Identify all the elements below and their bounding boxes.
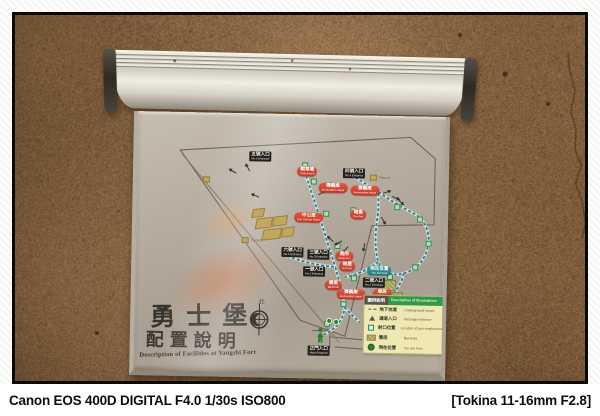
legend-header: 圖例說明 Description of Illustrations	[364, 296, 446, 307]
legend-rows: 地下坑道Underground tunnel通道入口Passage entran…	[364, 305, 447, 355]
legend-item-chinese: 通道入口	[379, 316, 401, 322]
label-english: No.6 Entrance	[283, 253, 301, 256]
label-english: Restroom	[338, 257, 350, 260]
legend-item-chinese: 營房	[379, 335, 401, 341]
gun-emplacement-icon	[351, 275, 357, 281]
map-facility-label: 砲堡Gun fort	[339, 261, 355, 272]
dirt-speck	[291, 59, 293, 62]
rail-body	[114, 67, 465, 117]
label-english: No.2 Entrance	[365, 283, 383, 286]
legend-icon-cell	[367, 334, 376, 341]
label-english: Gun fort	[342, 267, 352, 270]
legend-icon-cell	[367, 344, 376, 351]
person-legend-icon	[368, 344, 375, 351]
legend-item-english: Location of gun emplacement	[400, 326, 445, 331]
label-english: Ammunition depot	[340, 295, 363, 298]
trench-label: Trench	[379, 176, 390, 180]
legend-item-chinese: 地下坑道	[379, 306, 401, 312]
map-facility-label: 戰車壕Tank trench	[297, 166, 318, 177]
photo-area: 勇士堡 配置說明 Description of Facilities at Ya…	[12, 12, 588, 384]
label-english: No.4 Entrance	[345, 174, 363, 177]
legend-icon-cell	[367, 325, 375, 332]
camera-exif-text: Canon EOS 400D DIGITAL F4.0 1/30s ISO800	[9, 393, 286, 408]
label-english: No.5 Entrance	[251, 157, 269, 160]
map-entrance-label: 五號入口No.5 Entrance	[249, 151, 272, 161]
map-entrance-label: 正門入口Main Entrance	[307, 345, 330, 355]
gate-marker-icon	[333, 319, 339, 325]
building-shape	[255, 217, 274, 230]
legend-item-english: Barracks	[404, 336, 417, 340]
label-english: No.3 Entrance	[309, 255, 327, 258]
label-english: Tank trench	[300, 172, 315, 175]
building-shape	[251, 208, 265, 218]
gun-emplacement-icon	[311, 178, 317, 184]
map-entrance-label: 四號入口No.4 Entrance	[343, 168, 366, 178]
map-legend: 圖例說明 Description of Illustrations 地下坑道Un…	[363, 295, 447, 356]
label-english: Main Entrance	[309, 351, 327, 354]
legend-item-english: You are here	[404, 346, 423, 350]
label-english: Sun Yat-sen Room	[297, 218, 320, 221]
trench-icon	[242, 237, 249, 243]
dash-legend-icon	[368, 309, 376, 310]
legend-row: 現在位置You are here	[364, 342, 447, 354]
gun-emplacement-icon	[394, 204, 400, 210]
legend-header-chinese: 圖例說明	[364, 296, 388, 305]
lens-exif-text: [Tokina 11-16mm F2.8]	[451, 393, 591, 408]
map-entrance-label: 二號入口No.2 Entrance	[363, 277, 386, 287]
legend-header-english: Description of Illustrations	[388, 296, 446, 306]
sq-legend-icon	[368, 325, 375, 332]
framed-photo: 勇士堡 配置說明 Description of Facilities at Ya…	[0, 0, 600, 416]
hatch-legend-icon	[367, 334, 376, 341]
map-facility-label: 廁所Restroom	[335, 251, 353, 262]
trench-icon	[370, 175, 377, 181]
label-english: Ammunition depot	[322, 188, 345, 191]
map-entrance-label: 一號入口No.1 Entrance	[303, 266, 326, 276]
label-english: Gun fort	[353, 215, 363, 218]
trench-marker	[203, 176, 210, 182]
sign-board: 勇士堡 配置說明 Description of Facilities at Ya…	[129, 111, 450, 381]
map-entrance-label: 三號入口No.3 Entrance	[307, 249, 330, 259]
dirt-speck	[173, 59, 176, 62]
map-facility-label: 彈藥庫Ammunition depot	[319, 183, 348, 194]
trench-marker: Trench	[242, 237, 262, 243]
legend-item-english: Underground tunnel	[404, 308, 434, 313]
label-english: You are here	[370, 271, 388, 274]
map-facility-label: 砲堡Gun fort	[350, 209, 366, 220]
compass-rose-icon	[246, 303, 273, 335]
label-english: Ammunition depot	[354, 191, 377, 194]
sign-mounting-rail	[112, 50, 467, 117]
building-shape	[272, 215, 289, 227]
legend-item-chinese: 現在位置	[379, 345, 401, 351]
dirt-speck	[349, 67, 351, 70]
legend-item-english: Passage entrance	[404, 317, 431, 322]
gun-emplacement-icon	[323, 211, 329, 217]
map-facility-label: 彈藥庫Ammunition depot	[337, 289, 366, 300]
tri-legend-icon	[369, 316, 375, 321]
fort-map: 勇士堡 配置說明 Description of Facilities at Ya…	[133, 111, 446, 376]
label-english: No.1 Entrance	[305, 272, 323, 275]
gun-emplacement-icon	[417, 217, 423, 223]
gun-emplacement-icon	[412, 264, 418, 270]
legend-icon-cell	[367, 316, 376, 321]
trench-icon	[203, 176, 210, 182]
legend-item-chinese: 射口位置	[378, 325, 398, 331]
label-english: Bedroom	[328, 286, 339, 289]
mounted-sign: 勇士堡 配置說明 Description of Facilities at Ya…	[107, 51, 467, 384]
gate-marker-icon	[326, 318, 332, 324]
rail-endcap-left	[103, 48, 118, 112]
trench-label: Trench	[251, 238, 262, 242]
legend-icon-cell	[367, 309, 376, 310]
map-facility-label: 中山室Sun Yat-sen Room	[294, 212, 324, 223]
building-shape	[281, 226, 295, 237]
map-entrance-label: 六號入口No.6 Entrance	[281, 247, 304, 257]
you-are-here-person-icon	[315, 328, 326, 344]
exif-caption-bar: Canon EOS 400D DIGITAL F4.0 1/30s ISO800…	[0, 384, 600, 416]
gun-emplacement-icon	[426, 241, 432, 247]
sign-glass: 勇士堡 配置說明 Description of Facilities at Ya…	[133, 111, 446, 376]
trench-marker: Trench	[370, 175, 390, 181]
map-facility-label: 彈藥庫Ammunition depot	[351, 185, 380, 196]
you-are-here-label: 現在位置You are here	[367, 266, 392, 277]
gun-emplacement-icon	[340, 301, 346, 307]
